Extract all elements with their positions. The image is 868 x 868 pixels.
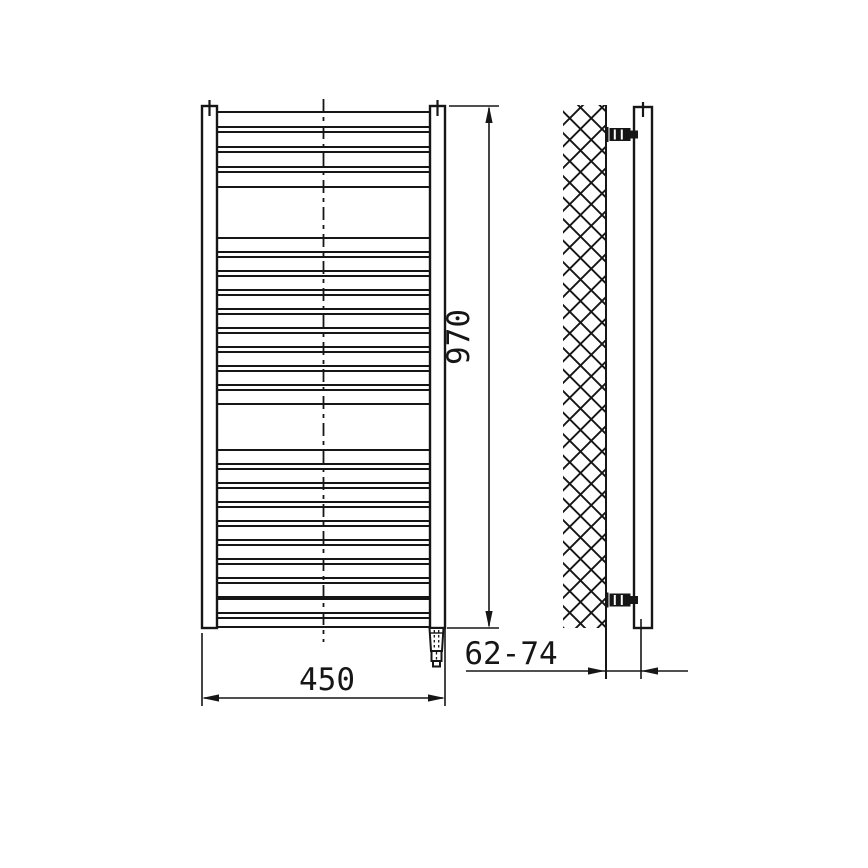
side-view-radiator-and-wall: [563, 102, 652, 679]
height-dimension-label: 970: [441, 309, 477, 365]
radiator-technical-drawing: 450 970 62-74: [0, 0, 868, 868]
drawing-canvas: 450 970 62-74: [0, 0, 868, 868]
width-dimension-label: 450: [299, 662, 355, 698]
depth-dimension-label: 62-74: [464, 636, 557, 672]
front-view-radiator: [202, 99, 445, 667]
